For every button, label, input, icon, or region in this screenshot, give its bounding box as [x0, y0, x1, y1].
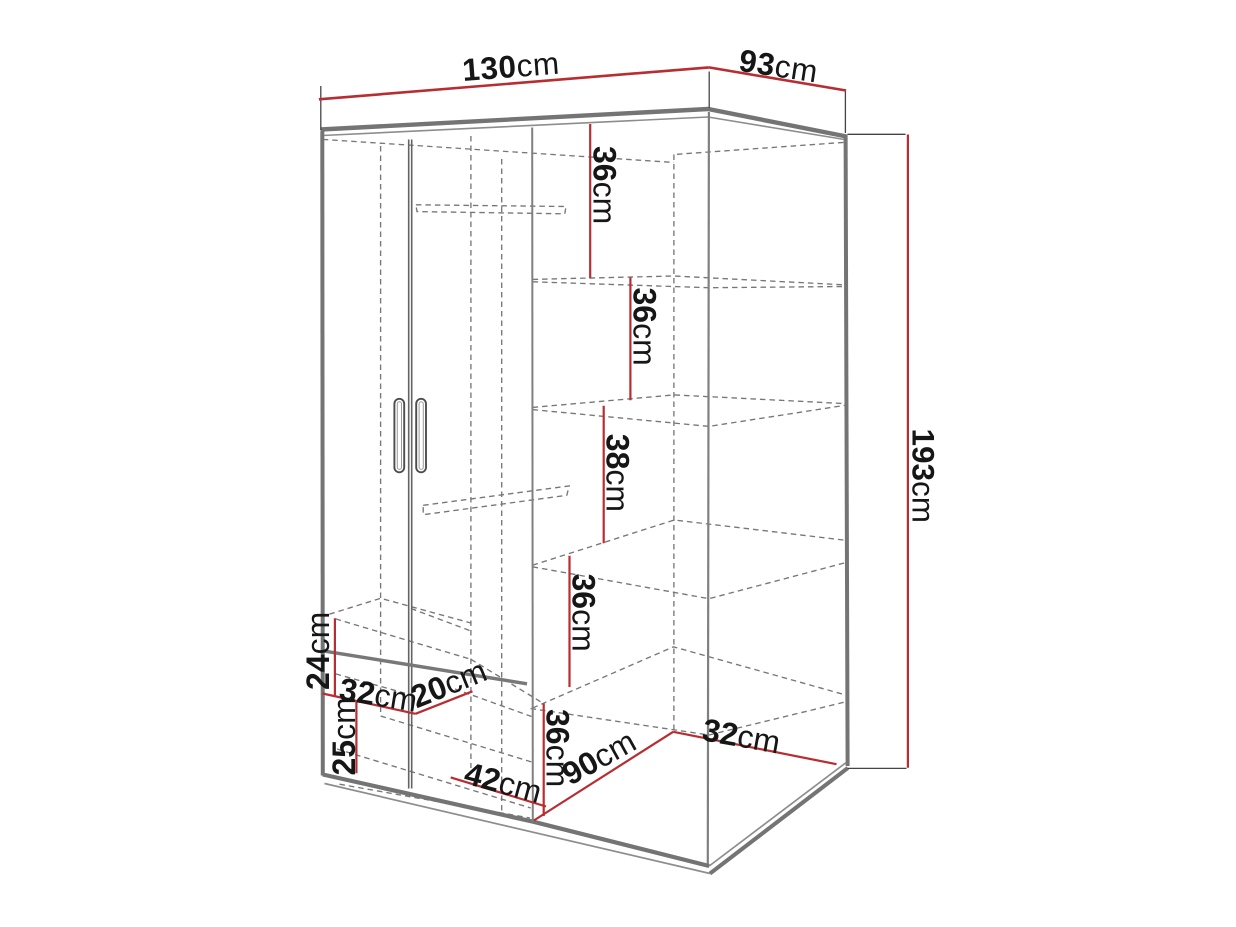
svg-text:36cm: 36cm — [627, 288, 663, 366]
svg-text:130cm: 130cm — [461, 45, 561, 88]
svg-text:193cm: 193cm — [906, 429, 942, 524]
svg-text:38cm: 38cm — [599, 434, 635, 512]
svg-text:24cm: 24cm — [300, 612, 336, 690]
svg-text:36cm: 36cm — [566, 574, 602, 652]
svg-text:36cm: 36cm — [587, 146, 623, 224]
